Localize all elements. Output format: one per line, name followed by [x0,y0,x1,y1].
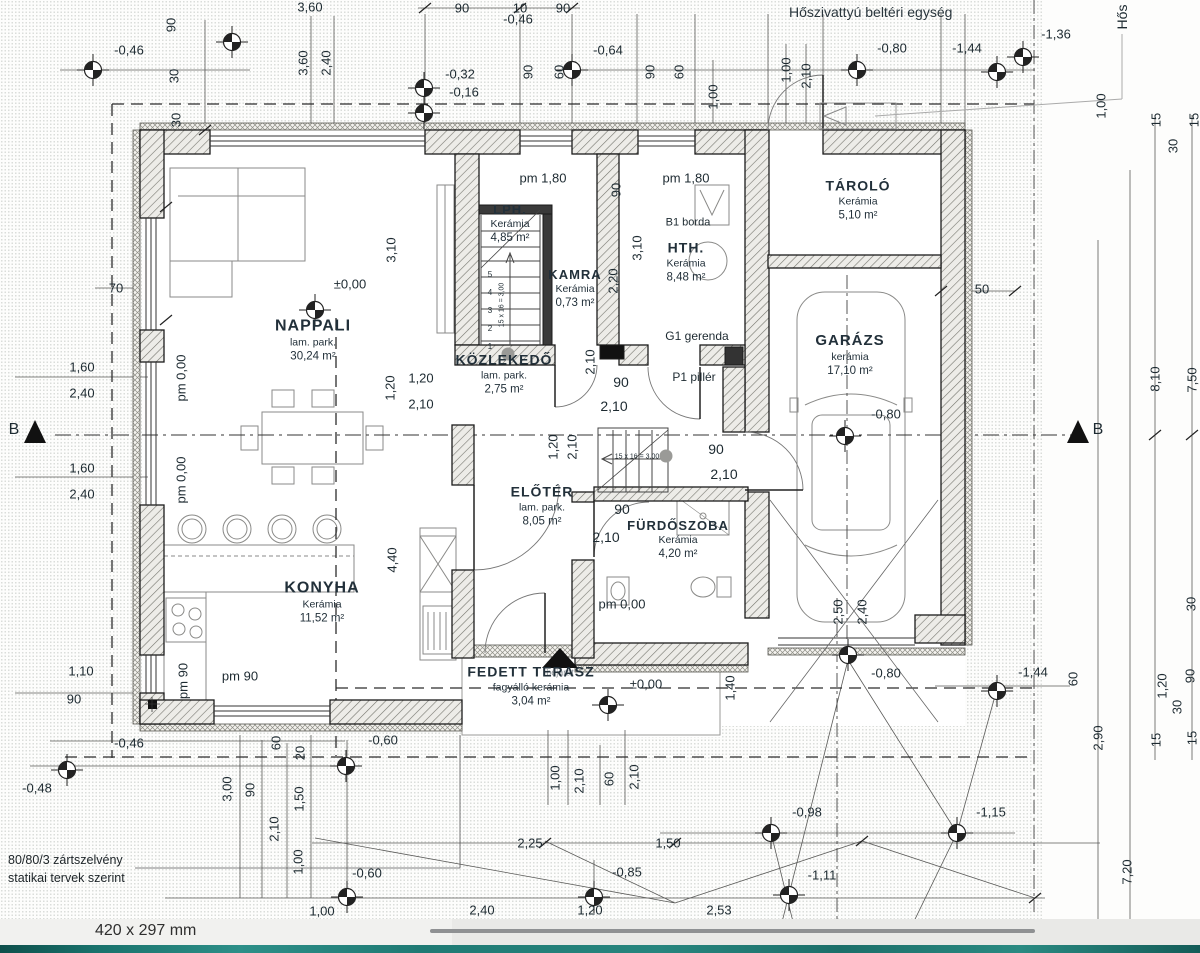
room-name: GARÁZS [815,332,884,351]
room-name: KONYHA [284,578,359,598]
room-label: KAMRAKerámia0,73 m² [548,267,601,311]
room-name: NAPPALI [275,316,351,336]
room-area: 4,20 m² [627,548,729,562]
room-label: KÖZLEKEDŐlam. park.2,75 m² [456,352,553,397]
room-finish: fagyálló kerámia [467,681,594,694]
room-name: KAMRA [548,267,601,283]
room-area: 0,73 m² [548,297,601,311]
room-label: NAPPALIlam. park.30,24 m² [275,316,351,364]
room-label: KONYHAKerámia11,52 m² [284,578,359,626]
room-area: 4,85 m² [490,232,529,246]
room-label: HTH.Kerámia8,48 m² [666,240,705,285]
room-label: GARÁZSkerámia17,10 m² [815,332,884,378]
room-finish: Kerámia [627,534,729,547]
room-labels: NAPPALIlam. park.30,24 m²KONYHAKerámia11… [0,0,1200,919]
room-finish: Kerámia [825,195,890,208]
room-finish: lam. park. [511,501,574,514]
room-name: FEDETT TERASZ [467,664,594,682]
structural-note-line2: statikai tervek szerint [8,871,125,885]
room-name: LPH. [490,202,529,218]
room-name: ELŐTÉR [511,484,574,502]
room-label: FEDETT TERASZfagyálló kerámia3,04 m² [467,664,594,709]
hvac-note: Hőszivattyú beltéri egység [789,4,952,20]
room-area: 8,48 m² [666,270,705,284]
room-label: LPH.Kerámia4,85 m² [490,202,529,246]
structural-note-line1: 80/80/3 zártszelvény [8,853,123,867]
room-name: TÁROLÓ [825,178,890,196]
paper-size-label: 420 x 297 mm [95,922,196,940]
room-area: 3,04 m² [467,694,594,708]
room-finish: kerámia [815,351,884,364]
status-bar: 420 x 297 mm [0,919,1200,945]
horizontal-scrollbar[interactable] [430,929,1035,933]
room-label: FÜRDŐSZOBAKerámia4,20 m² [627,518,729,562]
room-area: 2,75 m² [456,382,553,396]
floor-plan-canvas: 3,60901090-0,46-0,46-0,64-0,32-0,16-0,80… [0,0,1200,953]
room-name: HTH. [666,240,705,258]
room-name: FÜRDŐSZOBA [627,518,729,534]
room-name: KÖZLEKEDŐ [456,352,553,370]
room-label: ELŐTÉRlam. park.8,05 m² [511,484,574,529]
structural-note: 80/80/3 zártszelvény statikai tervek sze… [8,852,125,887]
photo-strip [0,945,1200,953]
room-area: 11,52 m² [284,611,359,625]
room-finish: Kerámia [548,283,601,296]
room-area: 17,10 m² [815,364,884,378]
room-finish: Kerámia [284,598,359,611]
paper-size-box: 420 x 297 mm [0,919,452,945]
room-area: 30,24 m² [275,349,351,363]
room-label: TÁROLÓKerámia5,10 m² [825,178,890,223]
room-area: 8,05 m² [511,514,574,528]
room-finish: lam. park. [456,369,553,382]
room-area: 5,10 m² [825,208,890,222]
room-finish: Kerámia [490,218,529,231]
room-finish: Kerámia [666,257,705,270]
room-finish: lam. park. [275,336,351,349]
